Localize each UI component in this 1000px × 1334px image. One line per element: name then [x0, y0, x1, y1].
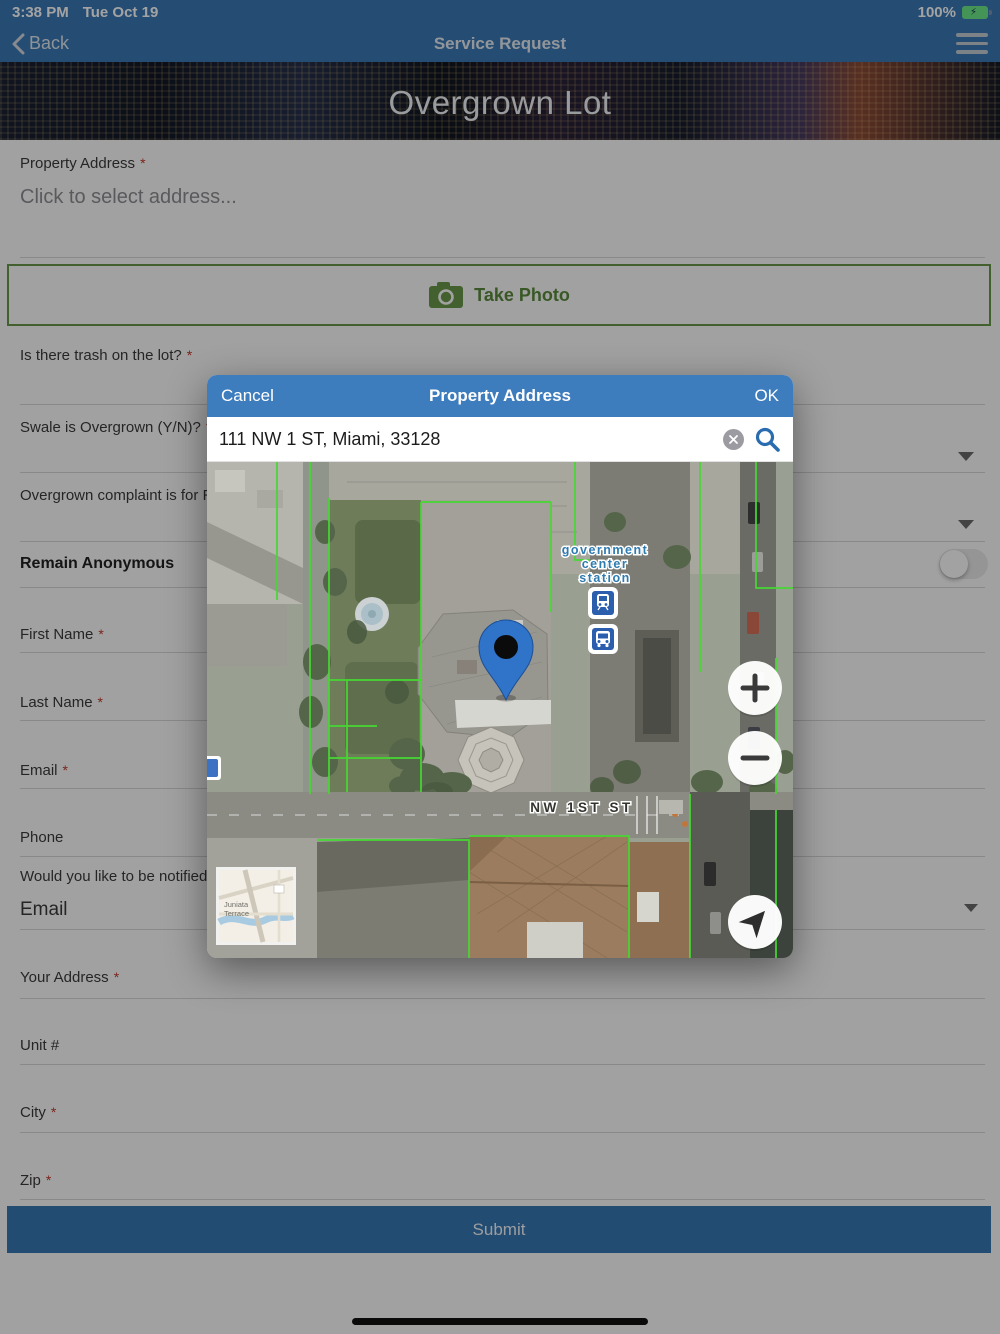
train-station-icon	[588, 587, 618, 619]
svg-text:Terrace: Terrace	[224, 909, 249, 918]
svg-text:Juniata: Juniata	[224, 900, 249, 909]
ok-button[interactable]: OK	[754, 386, 779, 406]
modal-title: Property Address	[207, 386, 793, 406]
clear-search-icon[interactable]	[723, 429, 744, 450]
basemap-toggle[interactable]: Juniata Terrace	[216, 867, 296, 945]
zoom-in-button[interactable]	[728, 661, 782, 717]
zoom-out-button[interactable]	[728, 731, 782, 787]
svg-text:government: government	[562, 543, 649, 557]
street-label: NW 1ST ST	[530, 800, 634, 815]
address-search-input[interactable]	[219, 429, 713, 450]
map-view[interactable]: government center station NW 1ST ST	[207, 462, 793, 958]
locate-button[interactable]	[728, 895, 782, 951]
svg-text:station: station	[579, 571, 630, 585]
modal-header: Property Address Cancel OK	[207, 375, 793, 417]
property-address-modal: Property Address Cancel OK	[207, 375, 793, 958]
search-icon[interactable]	[754, 426, 781, 453]
bus-station-icon	[588, 624, 618, 654]
cancel-button[interactable]: Cancel	[221, 386, 274, 406]
address-search-row	[207, 417, 793, 462]
svg-text:center: center	[582, 557, 629, 571]
